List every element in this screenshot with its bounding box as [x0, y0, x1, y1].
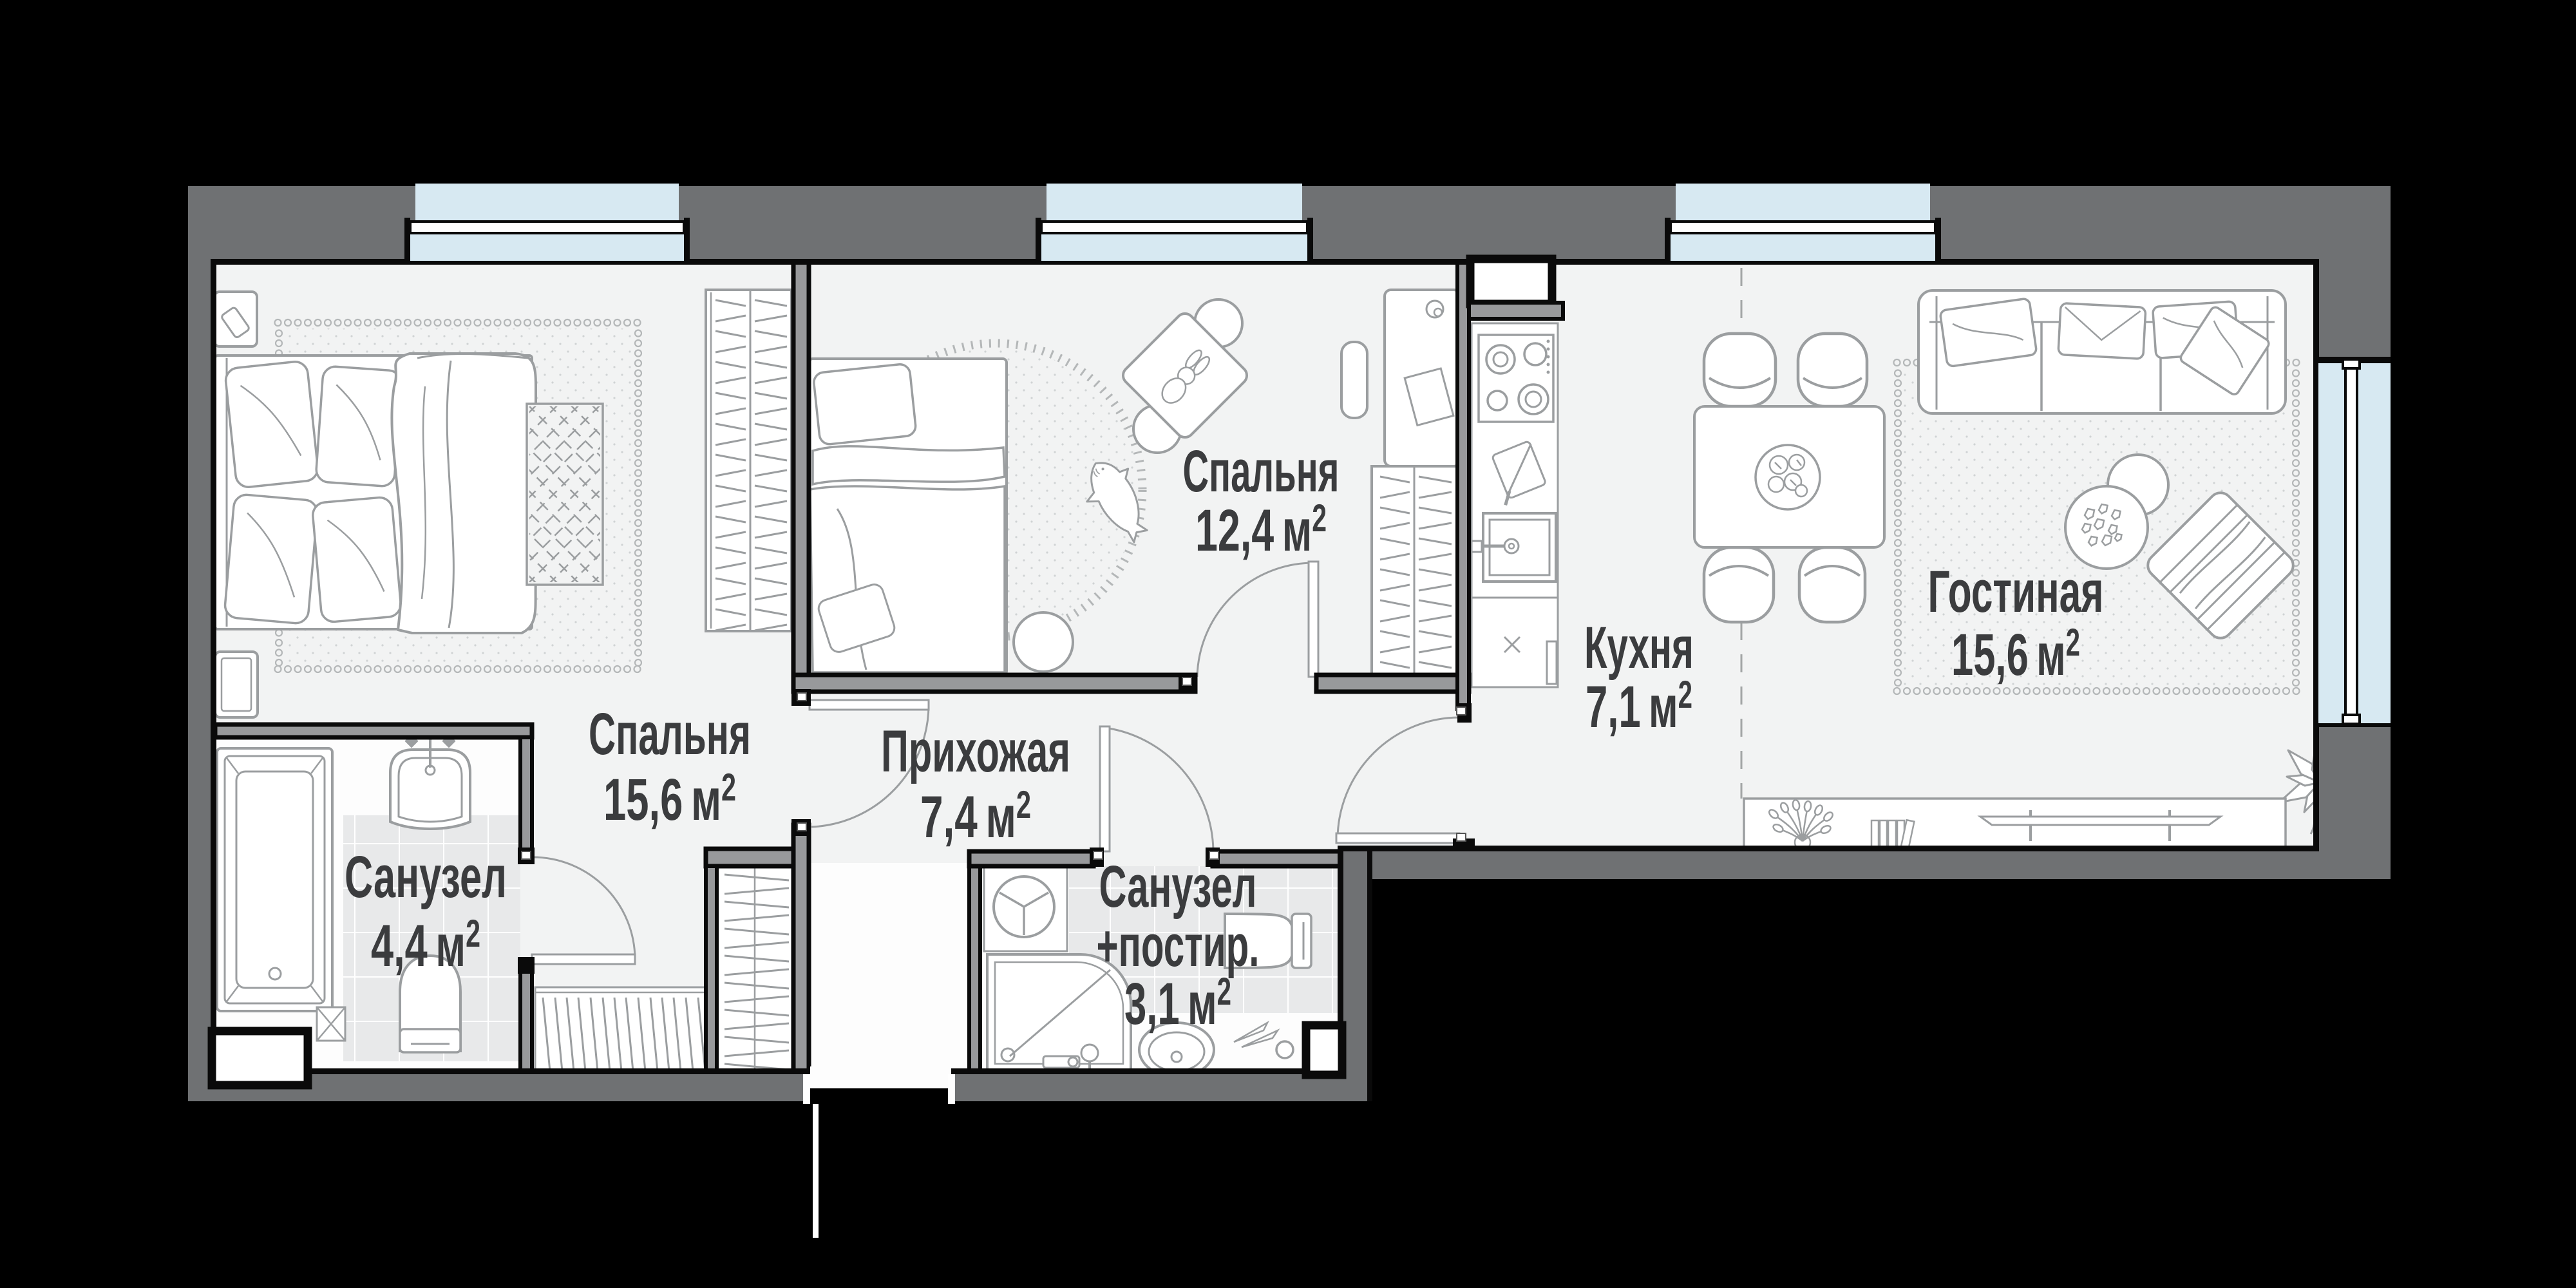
- svg-text:Санузел: Санузел: [345, 844, 507, 910]
- svg-text:+постир.: +постир.: [1097, 913, 1260, 979]
- svg-text:Прихожая: Прихожая: [881, 719, 1070, 784]
- svg-text:15,6 м2: 15,6 м2: [1951, 621, 2080, 688]
- svg-text:15,6 м2: 15,6 м2: [603, 766, 736, 833]
- svg-text:Спальня: Спальня: [589, 701, 751, 767]
- svg-text:Спальня: Спальня: [1183, 439, 1340, 504]
- svg-text:Гостиная: Гостиная: [1928, 559, 2104, 625]
- svg-text:7,4 м2: 7,4 м2: [920, 783, 1031, 850]
- svg-text:7,1 м2: 7,1 м2: [1586, 673, 1692, 740]
- svg-text:Санузел: Санузел: [1099, 854, 1257, 920]
- svg-text:4,4 м2: 4,4 м2: [371, 912, 480, 979]
- svg-text:3,1 м2: 3,1 м2: [1124, 970, 1231, 1037]
- svg-text:Кухня: Кухня: [1584, 615, 1694, 681]
- svg-text:12,4 м2: 12,4 м2: [1195, 497, 1327, 563]
